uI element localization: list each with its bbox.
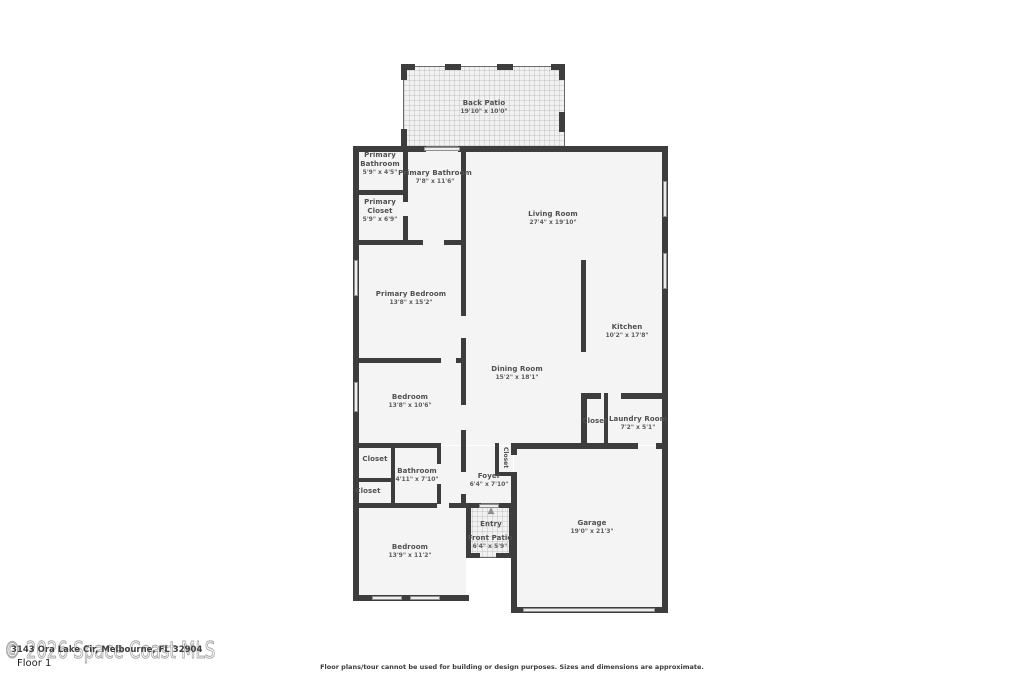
room-label-closet-foyer: Closet <box>502 447 509 468</box>
wall-segment <box>461 503 481 508</box>
wall-segment <box>445 64 461 70</box>
wall-segment <box>391 448 395 504</box>
room-label-bedroom-2: Bedroom 13'8" x 10'6" <box>388 393 431 409</box>
room-name: Kitchen <box>605 323 648 332</box>
room-dims: 19'0" x 21'3" <box>570 528 613 536</box>
room-label-laundry-room: Laundry Room 7'2" x 5'1" <box>609 415 667 431</box>
room-name: Garage <box>570 519 613 528</box>
room-label-front-patio: Front Patio 6'4" x 5'9" <box>468 534 513 550</box>
window-marker <box>663 253 667 289</box>
room-dims: 7'8" x 11'6" <box>398 178 472 186</box>
room-dims: 7'2" x 5'1" <box>609 424 667 432</box>
property-address: 3143 Ora Lake Cir, Melbourne, FL 32904 <box>11 645 202 655</box>
room-name: Primary Bathroom <box>355 151 405 169</box>
room-label-entry: Entry <box>480 520 502 529</box>
window-marker <box>354 260 358 296</box>
window-marker <box>523 608 655 612</box>
room-dims: 19'10" x 10'0" <box>460 108 507 116</box>
window-marker <box>663 181 667 217</box>
room-label-back-patio: Back Patio 19'10" x 10'0" <box>460 99 507 115</box>
room-dims: 4'11" x 7'10" <box>395 476 438 484</box>
room-name: Bedroom <box>388 393 431 402</box>
wall-segment <box>497 64 513 70</box>
room-name: Primary Bedroom <box>376 290 446 299</box>
window-marker <box>372 596 402 600</box>
wall-segment <box>656 443 668 449</box>
wall-segment <box>496 553 515 558</box>
room-label-garage: Garage 19'0" x 21'3" <box>570 519 613 535</box>
entry-direction-icon: ▲ <box>488 507 495 516</box>
room-label-primary-bedroom: Primary Bedroom 13'8" x 15'2" <box>376 290 446 306</box>
room-label-closet-hall-top: Closet <box>362 455 387 464</box>
room-dims: 13'8" x 15'2" <box>376 299 446 307</box>
wall-segment <box>621 393 668 399</box>
disclaimer-text: Floor plans/tour cannot be used for buil… <box>0 663 1024 671</box>
wall-segment <box>401 64 407 80</box>
wall-segment <box>461 146 466 245</box>
room-label-closet-hall-bottom: Closet <box>355 487 380 496</box>
wall-segment <box>581 260 586 352</box>
room-label-foyer: Foyer 6'4" x 7'10" <box>470 472 509 488</box>
room-label-primary-bathroom: Primary Bathroom 7'8" x 11'6" <box>398 169 472 185</box>
room-label-primary-closet: Primary Closet 5'9" x 6'9" <box>357 198 403 223</box>
wall-segment <box>401 129 407 149</box>
room-label-closet-laundry: Closet <box>582 417 607 426</box>
room-dims: 5'9" x 6'9" <box>357 216 403 224</box>
room-name: Bedroom <box>388 543 431 552</box>
wall-segment <box>353 358 441 363</box>
room-name: Foyer <box>470 472 509 481</box>
window-marker <box>354 382 358 412</box>
room-label-bedroom-3: Bedroom 13'9" x 11'2" <box>388 543 431 559</box>
room-name: Closet <box>362 455 387 464</box>
room-name: Entry <box>480 520 502 529</box>
room-dims: 13'8" x 10'6" <box>388 402 431 410</box>
room-dims: 10'2" x 17'8" <box>605 332 648 340</box>
room-label-bathroom: Bathroom 4'11" x 7'10" <box>395 467 438 483</box>
wall-segment <box>437 484 441 504</box>
room-name: Laundry Room <box>609 415 667 424</box>
room-label-dining-room: Dining Room 15'2" x 18'1" <box>491 365 542 381</box>
wall-segment <box>466 553 480 558</box>
wall-segment <box>461 443 466 472</box>
wall-segment <box>511 443 638 449</box>
room-label-kitchen: Kitchen 10'2" x 17'8" <box>605 323 648 339</box>
room-name: Primary Closet <box>357 198 403 216</box>
room-dims: 27'4" x 19'10" <box>528 219 578 227</box>
room-name: Back Patio <box>460 99 507 108</box>
room-name: Dining Room <box>491 365 542 374</box>
room-dims: 6'4" x 5'9" <box>468 543 513 551</box>
room-name: Closet <box>582 417 607 426</box>
room-name: Front Patio <box>468 534 513 543</box>
room-dims: 6'4" x 7'10" <box>470 481 509 489</box>
wall-segment <box>461 240 466 316</box>
window-marker <box>410 596 440 600</box>
room-dims: 15'2" x 18'1" <box>491 374 542 382</box>
wall-segment <box>437 448 441 464</box>
wall-segment <box>559 112 565 132</box>
floor-plan-canvas: Back Patio 19'10" x 10'0" Primary Bathro… <box>0 0 1024 683</box>
wall-segment <box>461 363 466 405</box>
wall-segment <box>353 503 437 508</box>
room-name: Living Room <box>528 210 578 219</box>
window-marker <box>424 147 460 151</box>
wall-segment <box>458 146 668 152</box>
wall-segment <box>353 240 423 245</box>
room-label-living-room: Living Room 27'4" x 19'10" <box>528 210 578 226</box>
wall-segment <box>353 443 441 448</box>
wall-segment <box>353 190 405 195</box>
wall-segment <box>353 478 395 482</box>
room-name: Bathroom <box>395 467 438 476</box>
room-name: Primary Bathroom <box>398 169 472 178</box>
wall-segment <box>559 64 565 80</box>
room-name: Closet <box>355 487 380 496</box>
room-dims: 13'9" x 11'2" <box>388 552 431 560</box>
